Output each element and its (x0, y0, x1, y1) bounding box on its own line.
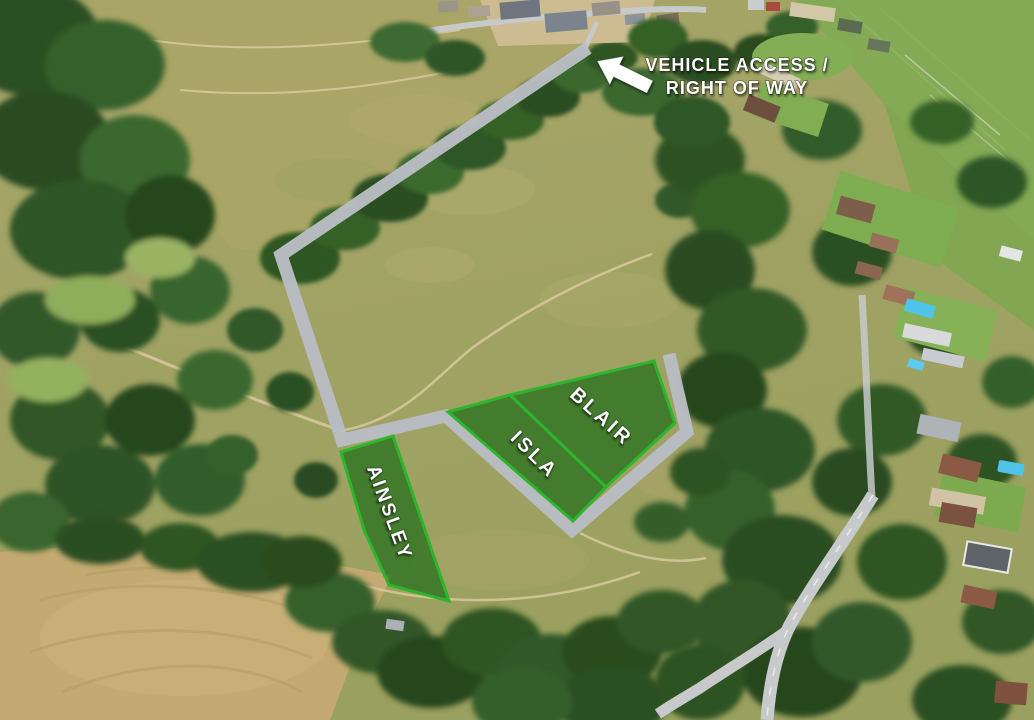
aerial-photo-background (0, 0, 1034, 720)
access-label-line2: RIGHT OF WAY (666, 78, 808, 98)
aerial-map-canvas: AINSLEY ISLA BLAIR VEHICLE ACCESS / RIGH… (0, 0, 1034, 720)
aerial-map: AINSLEY ISLA BLAIR VEHICLE ACCESS / RIGH… (0, 0, 1034, 720)
access-label-line1: VEHICLE ACCESS / (645, 55, 828, 75)
